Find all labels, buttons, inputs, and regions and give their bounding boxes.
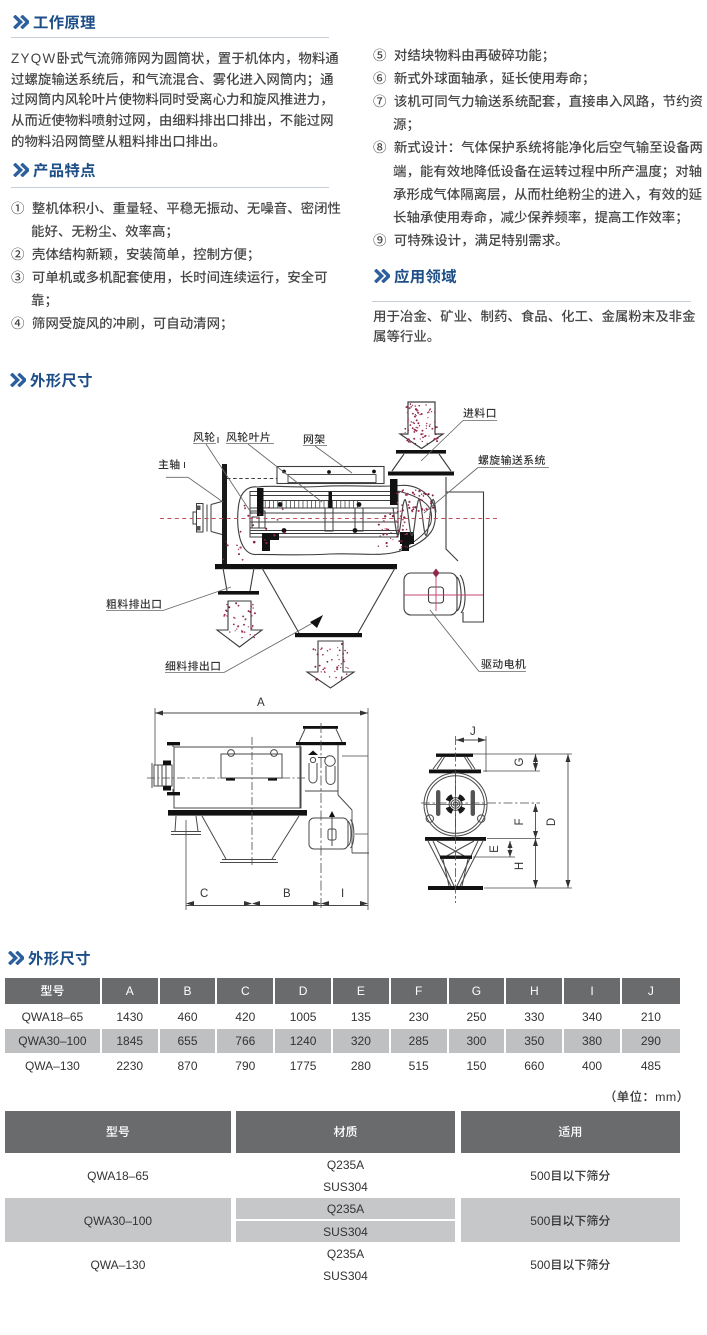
- svg-text:驱动电机: 驱动电机: [481, 656, 526, 672]
- svg-text:进料口: 进料口: [463, 405, 497, 421]
- svg-text:螺旋输送系统: 螺旋输送系统: [478, 452, 546, 468]
- svg-text:B: B: [283, 885, 291, 901]
- svg-text:E: E: [486, 845, 502, 853]
- svg-text:主轴: 主轴: [158, 457, 181, 473]
- svg-text:风轮叶片: 风轮叶片: [226, 429, 271, 445]
- svg-text:网架: 网架: [303, 431, 326, 447]
- svg-text:A: A: [257, 694, 265, 710]
- svg-text:风轮: 风轮: [193, 429, 216, 445]
- svg-text:F: F: [511, 818, 527, 825]
- svg-text:I: I: [341, 885, 344, 901]
- svg-text:G: G: [511, 757, 527, 766]
- svg-text:H: H: [511, 862, 527, 870]
- svg-text:D: D: [543, 818, 559, 826]
- svg-text:细料排出口: 细料排出口: [165, 658, 221, 674]
- svg-text:粗料排出口: 粗料排出口: [106, 596, 162, 612]
- svg-text:C: C: [200, 885, 208, 901]
- svg-text:J: J: [470, 723, 476, 739]
